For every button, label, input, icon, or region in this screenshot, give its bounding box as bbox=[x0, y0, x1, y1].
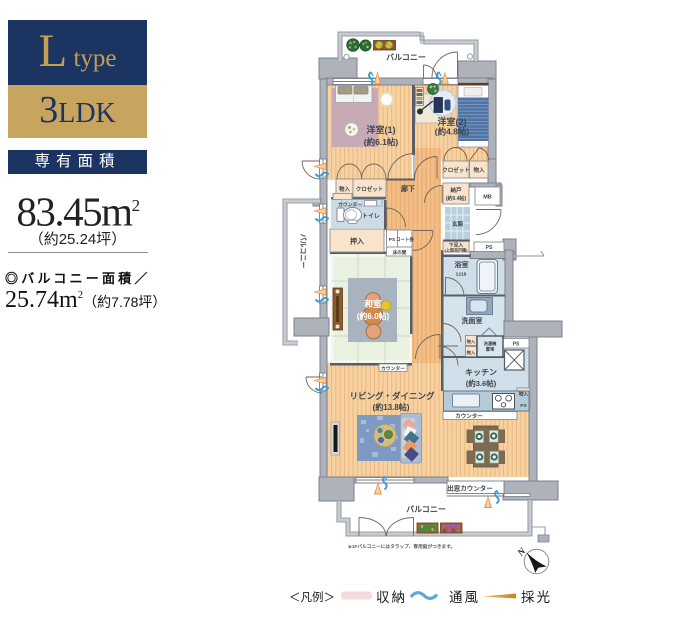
svg-text:物入: 物入 bbox=[467, 338, 476, 345]
svg-text:(約6.1帖): (約6.1帖) bbox=[364, 137, 399, 147]
svg-text:トイレ: トイレ bbox=[362, 213, 380, 220]
svg-text:PS: PS bbox=[389, 237, 396, 243]
svg-text:物入: 物入 bbox=[467, 349, 476, 356]
svg-text:(上部吊戸棚): (上部吊戸棚) bbox=[445, 247, 468, 253]
svg-text:＜凡例＞: ＜凡例＞ bbox=[289, 590, 335, 604]
svg-text:クロゼット: クロゼット bbox=[442, 166, 470, 174]
svg-text:浴室: 浴室 bbox=[455, 260, 469, 269]
svg-text:リビング・ダイニング: リビング・ダイニング bbox=[349, 391, 435, 401]
svg-text:(約6.0帖): (約6.0帖) bbox=[357, 311, 390, 321]
svg-text:PS: PS bbox=[513, 342, 520, 348]
svg-text:カウンター: カウンター bbox=[381, 365, 405, 372]
svg-text:(約0.4帖): (約0.4帖) bbox=[446, 195, 467, 202]
svg-text:※1Fバルコニーにはタラップ、専用庭がつきます。: ※1Fバルコニーにはタラップ、専用庭がつきます。 bbox=[348, 543, 455, 550]
svg-text:キッチン: キッチン bbox=[465, 368, 497, 377]
svg-text:収納: 収納 bbox=[376, 590, 407, 605]
svg-text:MB: MB bbox=[483, 195, 492, 201]
svg-text:洋室(1): 洋室(1) bbox=[367, 124, 396, 135]
svg-text:物入: 物入 bbox=[339, 185, 351, 193]
svg-text:カウンター: カウンター bbox=[455, 412, 483, 420]
svg-text:(約3.6帖): (約3.6帖) bbox=[466, 378, 497, 388]
svg-text:1218: 1218 bbox=[456, 272, 467, 278]
svg-text:コート掛: コート掛 bbox=[396, 236, 414, 243]
svg-text:床の間: 床の間 bbox=[393, 249, 407, 256]
svg-text:通風: 通風 bbox=[449, 590, 480, 605]
svg-text:PS: PS bbox=[486, 245, 493, 251]
svg-text:クロゼット: クロゼット bbox=[356, 185, 384, 193]
svg-text:バルコニー: バルコニー bbox=[299, 234, 307, 269]
svg-text:出窓カウンター: 出窓カウンター bbox=[447, 484, 493, 493]
svg-text:和室: 和室 bbox=[364, 299, 382, 309]
svg-text:洗面室: 洗面室 bbox=[462, 316, 483, 325]
svg-text:置場: 置場 bbox=[486, 346, 495, 353]
svg-text:バルコニー: バルコニー bbox=[386, 53, 426, 62]
svg-text:(約13.8帖): (約13.8帖) bbox=[373, 402, 410, 412]
svg-text:カウンター: カウンター bbox=[338, 201, 362, 208]
svg-text:押入: 押入 bbox=[350, 237, 364, 246]
svg-text:玄関: 玄関 bbox=[452, 220, 464, 228]
svg-text:物入: 物入 bbox=[519, 391, 529, 398]
svg-text:廊下: 廊下 bbox=[401, 184, 415, 193]
svg-text:採光: 採光 bbox=[521, 590, 552, 605]
svg-text:(約4.8帖): (約4.8帖) bbox=[435, 127, 470, 137]
svg-text:物入: 物入 bbox=[473, 166, 485, 174]
svg-text:バルコニー: バルコニー bbox=[406, 505, 446, 514]
svg-text:PS: PS bbox=[520, 403, 527, 409]
svg-text:納戸: 納戸 bbox=[450, 186, 462, 194]
svg-text:洋室(2): 洋室(2) bbox=[438, 116, 467, 127]
